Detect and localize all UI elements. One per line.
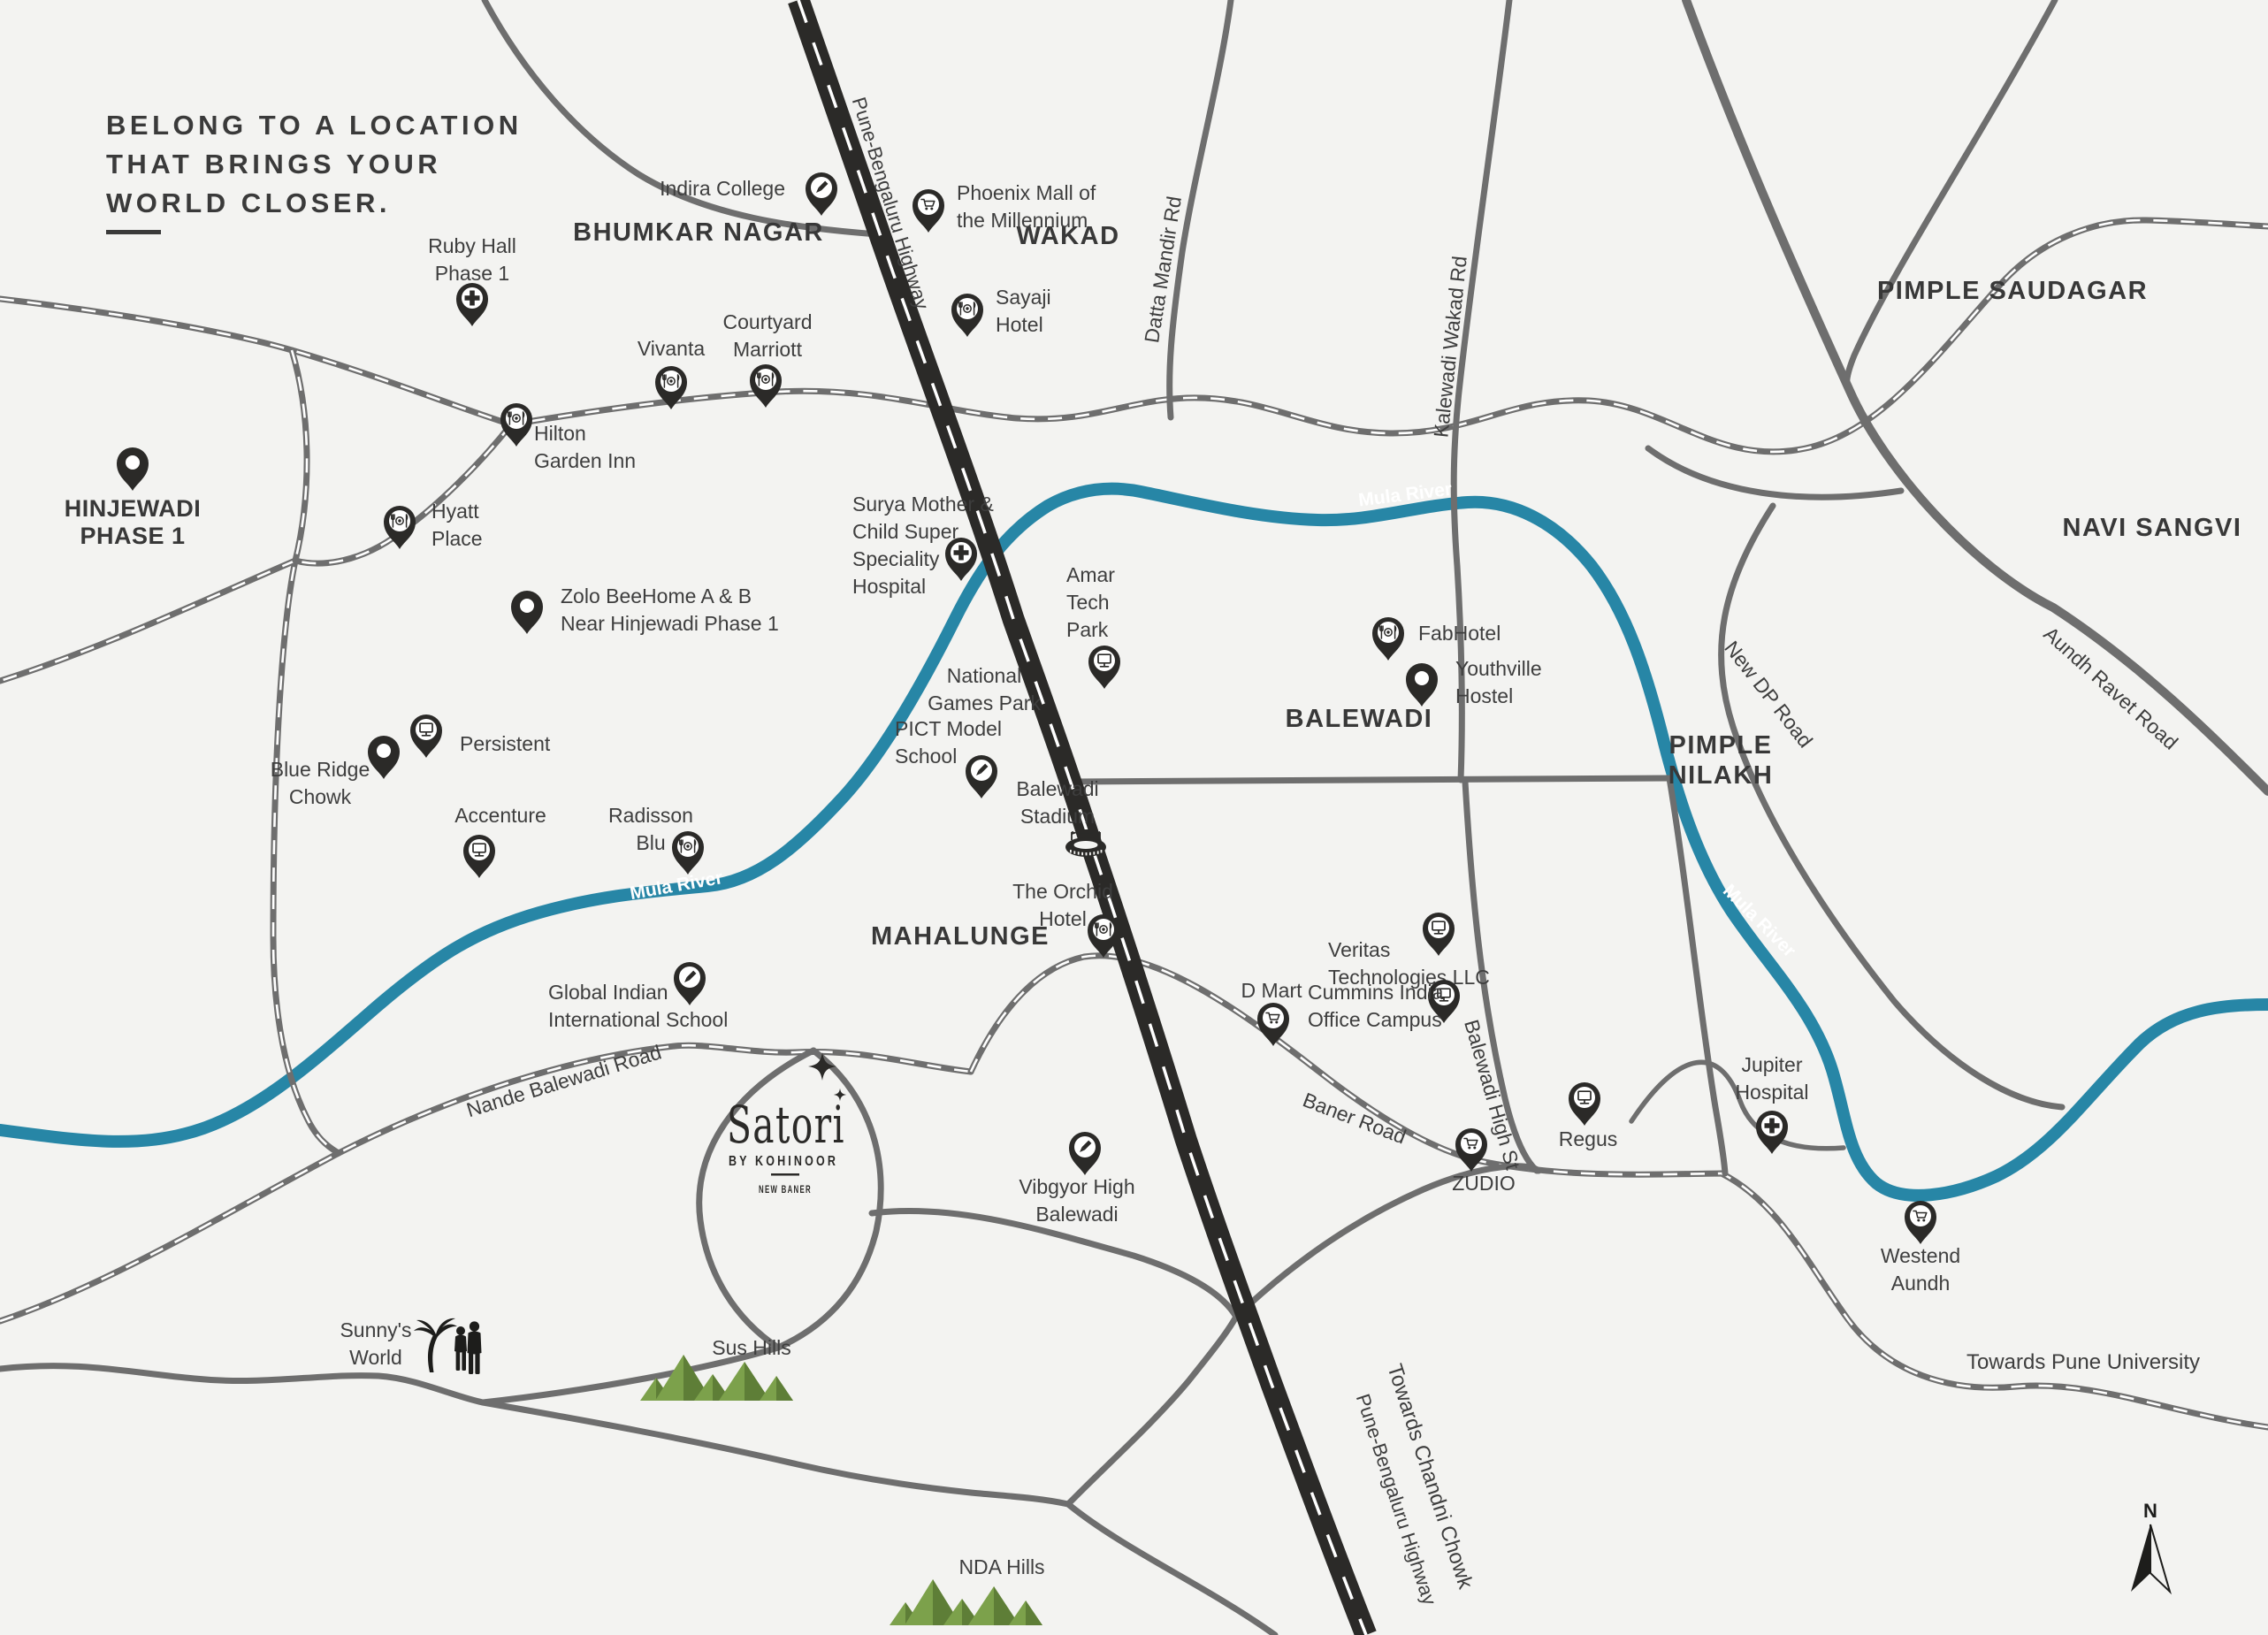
pict-model-school-label: PICT Model bbox=[895, 717, 1002, 740]
hinjewadi-phase-1-label: HINJEWADI bbox=[65, 495, 202, 522]
tagline-line-2: THAT BRINGS YOUR bbox=[106, 149, 441, 180]
hilton-garden-inn-label: Hilton bbox=[534, 422, 586, 445]
blue-ridge-chowk-label: Chowk bbox=[289, 785, 352, 808]
hyatt-place-label: Hyatt bbox=[431, 500, 479, 523]
fabhotel-label: FabHotel bbox=[1418, 622, 1501, 645]
location-map-page: BELONG TO A LOCATION THAT BRINGS YOUR WO… bbox=[0, 0, 2268, 1635]
compass-north-label: N bbox=[2143, 1500, 2157, 1522]
logo-subtitle: NEW BANER bbox=[759, 1183, 812, 1196]
westend-aundh-pin-hole bbox=[1910, 1205, 1931, 1226]
phoenix-mall-label: the Millennium bbox=[957, 209, 1088, 232]
sunnys-world-label: Sunny's bbox=[340, 1318, 411, 1341]
veritas-label: Veritas bbox=[1328, 938, 1390, 961]
the-orchid-hotel-label: The Orchid bbox=[1012, 880, 1113, 903]
balewadi-stadium-label: Stadium bbox=[1020, 805, 1095, 828]
vibgyor-high-label: Vibgyor High bbox=[1019, 1175, 1134, 1198]
area-label-pimple-saudagar: PIMPLE SAUDAGAR bbox=[1877, 277, 2148, 305]
jupiter-hospital-label: Hospital bbox=[1735, 1081, 1808, 1104]
hyatt-place-label: Place bbox=[431, 527, 483, 550]
hinjewadi-phase-1-label: PHASE 1 bbox=[80, 523, 185, 549]
area-label-pimple-nilakh: PIMPLE bbox=[1669, 731, 1773, 760]
tagline-underline bbox=[106, 230, 161, 234]
map-background bbox=[0, 0, 2268, 1635]
persistent-label: Persistent bbox=[460, 732, 551, 755]
zolo-beehome-pin-hole bbox=[520, 599, 534, 613]
tagline-line-1: BELONG TO A LOCATION bbox=[106, 110, 523, 141]
balewadi-stadium-label: Balewadi bbox=[1016, 777, 1098, 800]
map-canvas: BELONG TO A LOCATION THAT BRINGS YOUR WO… bbox=[0, 0, 2268, 1635]
tagline-line-3: WORLD CLOSER. bbox=[106, 187, 391, 218]
accenture-pin-hole bbox=[469, 839, 490, 860]
regus-label: Regus bbox=[1559, 1127, 1617, 1150]
ruby-hall-phase-1-label: Phase 1 bbox=[435, 262, 509, 285]
westend-aundh-label: Westend bbox=[1881, 1244, 1960, 1267]
d-mart-pin-hole bbox=[1263, 1007, 1284, 1028]
sayaji-hotel-label: Hotel bbox=[996, 313, 1043, 336]
area-label-pimple-nilakh: NILAKH bbox=[1669, 761, 1774, 790]
road-label-towards-pune-university: Towards Pune University bbox=[1966, 1350, 2200, 1374]
courtyard-marriott-label: Courtyard bbox=[723, 310, 813, 333]
courtyard-marriott-label: Marriott bbox=[733, 338, 803, 361]
sunnys-world-label: World bbox=[349, 1346, 402, 1369]
hinjewadi-phase-1-pin-hole bbox=[126, 455, 140, 470]
youthville-hostel-label: Youthville bbox=[1455, 657, 1542, 680]
logo-name: Satori bbox=[727, 1095, 845, 1155]
area-label-balewadi: BALEWADI bbox=[1286, 705, 1433, 733]
logo-divider bbox=[771, 1173, 799, 1176]
phoenix-mall-pin-hole bbox=[918, 194, 939, 215]
amar-tech-park-pin-hole bbox=[1094, 650, 1115, 671]
surya-hospital-label: Speciality bbox=[852, 547, 940, 570]
area-label-mahalunge: MAHALUNGE bbox=[871, 922, 1050, 951]
sus-hills-label: Sus Hills bbox=[712, 1336, 790, 1359]
nda-hills-label: NDA Hills bbox=[958, 1555, 1044, 1578]
blue-ridge-chowk-pin-hole bbox=[377, 744, 391, 758]
blue-ridge-chowk-label: Blue Ridge bbox=[271, 758, 370, 781]
ruby-hall-phase-1-label: Ruby Hall bbox=[428, 234, 516, 257]
amar-tech-park-label: Tech bbox=[1066, 591, 1110, 614]
radisson-blu-label: Radisson bbox=[608, 804, 693, 827]
jupiter-hospital-label: Jupiter bbox=[1741, 1053, 1802, 1076]
amar-tech-park-label: Park bbox=[1066, 618, 1109, 641]
youthville-hostel-pin-hole bbox=[1415, 671, 1429, 685]
surya-hospital-label: Child Super bbox=[852, 520, 959, 543]
national-games-park-label: National bbox=[947, 664, 1021, 687]
cummins-label: Cummins India bbox=[1308, 981, 1444, 1004]
accenture-label: Accenture bbox=[454, 804, 546, 827]
phoenix-mall-label: Phoenix Mall of bbox=[957, 181, 1096, 204]
logo-by-line: BY KOHINOOR bbox=[729, 1154, 838, 1169]
indira-college-label: Indira College bbox=[660, 177, 785, 200]
pict-model-school-label: School bbox=[895, 745, 957, 768]
persistent-pin-hole bbox=[416, 719, 437, 740]
veritas-pin-hole bbox=[1428, 917, 1449, 938]
zudio-pin-hole bbox=[1461, 1133, 1482, 1154]
the-orchid-hotel-label: Hotel bbox=[1039, 907, 1087, 930]
road-balewadi-loop-top bbox=[1073, 778, 1669, 782]
global-indian-school-label: Global Indian bbox=[548, 981, 668, 1004]
hilton-garden-inn-label: Garden Inn bbox=[534, 449, 636, 472]
zolo-beehome-label: Zolo BeeHome A & B bbox=[561, 584, 752, 607]
balewadi-stadium-stadium-icon bbox=[1065, 829, 1106, 857]
national-games-park-label: Games Park bbox=[928, 691, 1041, 714]
global-indian-school-label: International School bbox=[548, 1008, 728, 1031]
zolo-beehome-label: Near Hinjewadi Phase 1 bbox=[561, 612, 779, 635]
westend-aundh-label: Aundh bbox=[1891, 1272, 1951, 1295]
vibgyor-high-label: Balewadi bbox=[1035, 1203, 1118, 1226]
radisson-blu-label: Blu bbox=[636, 831, 665, 854]
youthville-hostel-label: Hostel bbox=[1455, 684, 1513, 707]
vivanta-label: Vivanta bbox=[638, 337, 706, 360]
area-label-bhumkar-nagar: BHUMKAR NAGAR bbox=[573, 218, 824, 247]
amar-tech-park-label: Amar bbox=[1066, 563, 1115, 586]
surya-hospital-label: Hospital bbox=[852, 575, 926, 598]
zudio-label: ZUDIO bbox=[1452, 1172, 1516, 1195]
surya-hospital-label: Surya Mother & bbox=[852, 493, 994, 516]
d-mart-label: D Mart bbox=[1241, 979, 1303, 1002]
area-label-navi-sangvi: NAVI SANGVI bbox=[2063, 514, 2242, 542]
cummins-label: Office Campus bbox=[1308, 1008, 1442, 1031]
regus-pin-hole bbox=[1574, 1087, 1595, 1108]
sayaji-hotel-label: Sayaji bbox=[996, 286, 1051, 309]
